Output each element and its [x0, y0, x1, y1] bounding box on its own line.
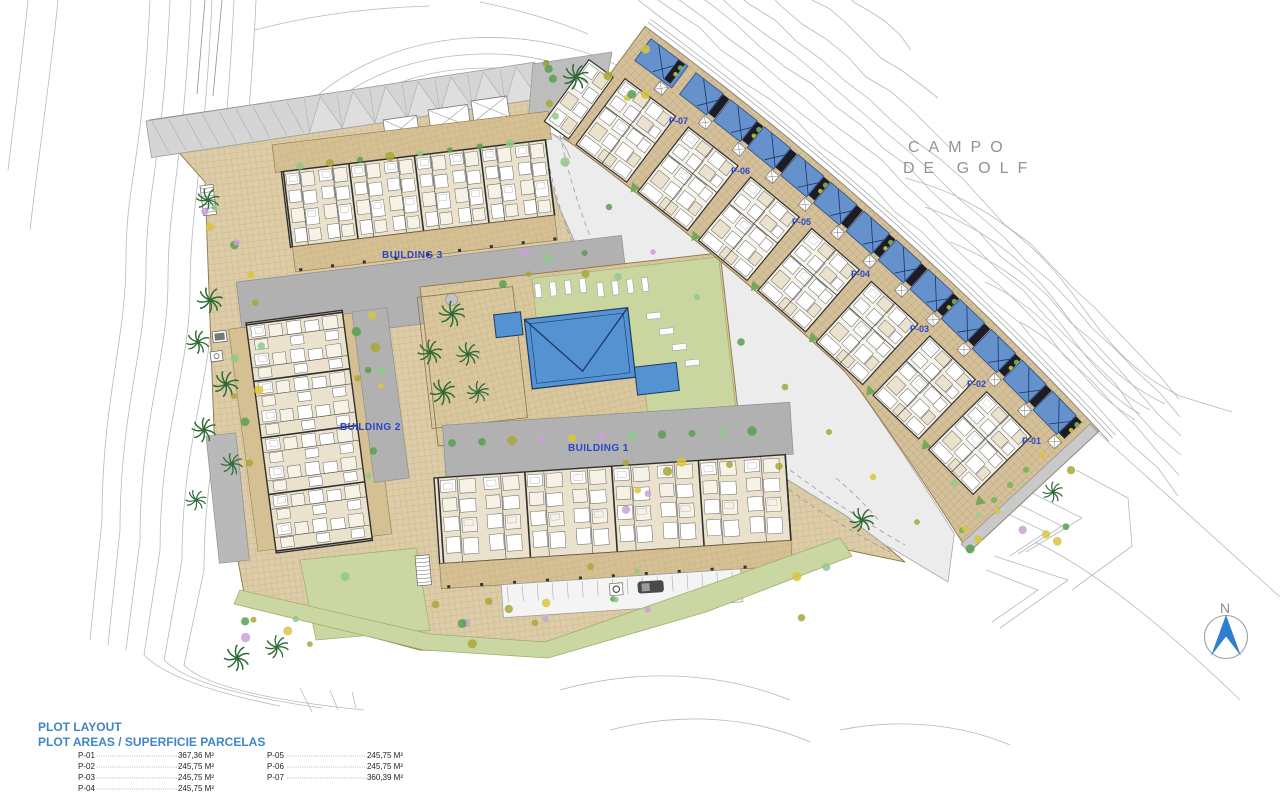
svg-text:367,36 M²: 367,36 M² — [178, 751, 214, 760]
svg-text:P-06: P-06 — [731, 166, 750, 176]
svg-text:P-05: P-05 — [792, 217, 811, 227]
svg-text:245,75 M²: 245,75 M² — [367, 762, 403, 771]
svg-text:P-01: P-01 — [1022, 436, 1041, 446]
svg-text:DE GOLF: DE GOLF — [903, 160, 1036, 177]
svg-text:360,39 M²: 360,39 M² — [367, 773, 403, 782]
svg-text:P-07: P-07 — [669, 116, 688, 126]
svg-text:P-02: P-02 — [967, 379, 986, 389]
svg-text:N: N — [1220, 600, 1230, 616]
svg-text:P-02: P-02 — [78, 762, 95, 771]
svg-text:BUILDING 3: BUILDING 3 — [382, 250, 443, 261]
svg-text:BUILDING 1: BUILDING 1 — [568, 443, 629, 454]
svg-text:P-04: P-04 — [78, 784, 95, 793]
svg-text:P-04: P-04 — [851, 269, 870, 279]
svg-text:P-06: P-06 — [267, 762, 284, 771]
svg-text:P-01: P-01 — [78, 751, 95, 760]
svg-text:245,75 M²: 245,75 M² — [178, 762, 214, 771]
svg-text:P-05: P-05 — [267, 751, 284, 760]
svg-text:BUILDING 2: BUILDING 2 — [340, 422, 401, 433]
svg-text:P-03: P-03 — [78, 773, 95, 782]
svg-text:245,75 M²: 245,75 M² — [367, 751, 403, 760]
svg-text:245,75 M²: 245,75 M² — [178, 784, 214, 793]
svg-text:P-03: P-03 — [910, 324, 929, 334]
svg-text:245,75 M²: 245,75 M² — [178, 773, 214, 782]
svg-text:PLOT AREAS / SUPERFICIE PARCEL: PLOT AREAS / SUPERFICIE PARCELAS — [38, 735, 265, 749]
svg-text:P-07: P-07 — [267, 773, 284, 782]
svg-text:CAMPO: CAMPO — [908, 139, 1012, 156]
svg-text:PLOT LAYOUT: PLOT LAYOUT — [38, 720, 122, 734]
